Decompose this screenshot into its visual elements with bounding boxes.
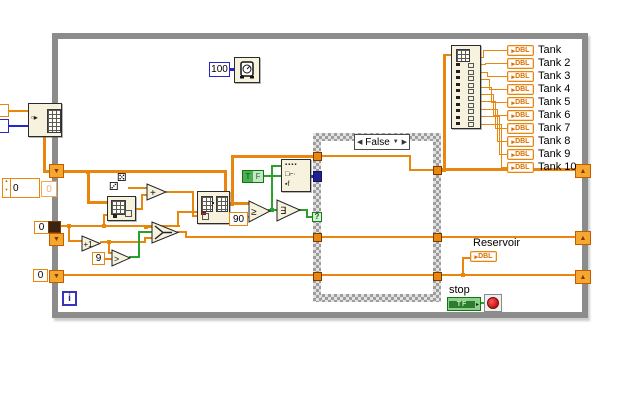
tank-label: Tank	[538, 44, 561, 56]
wire	[487, 76, 507, 77]
shift-register-right-top[interactable]: ▲	[575, 164, 591, 178]
tank-indicator[interactable]: ▸DBL	[507, 45, 534, 56]
true-false-constant[interactable]: T F	[242, 170, 264, 183]
tank-label: Tank 6	[538, 109, 570, 121]
dice-icon: ⚂	[109, 182, 119, 193]
stop-sign-icon	[487, 297, 499, 309]
array-grid-icon	[111, 200, 126, 215]
case-tunnel-left-mid[interactable]	[313, 233, 322, 242]
case-selector-label[interactable]: ◀ False ▼ ▶	[354, 134, 410, 150]
case-structure-bottom-border[interactable]	[313, 294, 441, 302]
array-grid-icon	[201, 196, 213, 212]
reservoir-indicator[interactable]: ▸DBL	[470, 251, 497, 262]
case-prev-arrow-icon[interactable]: ◀	[355, 138, 364, 146]
greater-equal-node[interactable]: ≥	[248, 200, 272, 224]
svg-text:≥: ≥	[251, 207, 257, 218]
wire	[43, 137, 46, 171]
wire-junction	[67, 224, 71, 228]
wire	[485, 63, 507, 64]
select-icon-row: ▪▪▪▪	[285, 162, 298, 168]
svg-text:+: +	[150, 188, 156, 199]
numeric-control-zero[interactable]: ▲▼ 0	[2, 178, 40, 198]
wait-metronome-node[interactable]	[234, 57, 260, 83]
index-row	[454, 75, 478, 80]
wire	[483, 50, 507, 51]
tank-label: Tank 8	[538, 135, 570, 147]
iteration-terminal[interactable]: i	[62, 291, 77, 306]
wire	[185, 236, 314, 238]
index-row	[454, 108, 478, 113]
nine-constant[interactable]: 9	[92, 252, 105, 265]
tank-label: Tank 5	[538, 96, 570, 108]
reservoir-init-zero-constant[interactable]: 0	[33, 269, 48, 282]
shift-register-right-mid[interactable]: ▲	[575, 231, 591, 245]
wire	[9, 125, 28, 127]
index-array-expanded-node[interactable]	[451, 45, 481, 129]
wire	[322, 236, 434, 238]
wire	[443, 55, 446, 170]
tank-indicator[interactable]: ▸DBL	[507, 84, 534, 95]
index-rows	[454, 62, 478, 126]
tank-indicator[interactable]: ▸DBL	[507, 97, 534, 108]
wire-junction	[442, 168, 446, 172]
case-tunnel-left-bottom[interactable]	[313, 272, 322, 281]
shift-register-right-bottom[interactable]: ▲	[575, 270, 591, 284]
wire	[479, 124, 501, 125]
wire	[87, 201, 107, 204]
wire	[499, 116, 500, 155]
wire-junction	[461, 273, 465, 277]
loop-condition-terminal[interactable]	[484, 294, 502, 312]
wire	[138, 231, 152, 233]
wire	[138, 232, 140, 258]
wire	[177, 211, 198, 213]
case-selector-terminal[interactable]: ?	[312, 212, 322, 222]
stop-button-terminal[interactable]: TF ▸	[447, 297, 481, 311]
tank-indicator[interactable]: ▸DBL	[507, 136, 534, 147]
index-port	[202, 213, 209, 220]
tank-indicator[interactable]: ▸DBL	[507, 71, 534, 82]
wire	[231, 155, 314, 158]
case-tunnel-left-top[interactable]	[313, 152, 322, 161]
wire	[9, 110, 28, 112]
tank-indicator[interactable]: ▸DBL	[507, 149, 534, 160]
svg-text:∃: ∃	[280, 206, 286, 217]
numeric-control-value[interactable]: 0	[11, 179, 39, 197]
cutoff-constant-bottom[interactable]	[0, 119, 9, 133]
wire	[479, 116, 499, 117]
wire	[322, 155, 411, 157]
wire	[87, 172, 90, 203]
wire	[409, 169, 434, 171]
wire	[479, 109, 497, 110]
wire	[141, 194, 143, 210]
metronome-icon	[235, 58, 259, 82]
array-grid-icon	[456, 49, 470, 62]
index-row	[454, 62, 478, 67]
wire	[483, 50, 484, 58]
case-selector-value[interactable]: False	[365, 137, 389, 148]
wire-junction	[230, 202, 234, 206]
wait-ms-constant[interactable]: 100	[209, 62, 230, 77]
shift-register-left-mid[interactable]: ▼	[49, 233, 64, 246]
select-icon-row: ▪f	[285, 181, 289, 188]
wire	[110, 241, 146, 243]
case-next-arrow-icon[interactable]: ▶	[400, 138, 409, 146]
spinner-icon[interactable]: ▲▼	[3, 179, 11, 197]
index-array-node[interactable]	[107, 196, 136, 221]
tank-indicator[interactable]: ▸DBL	[507, 162, 534, 173]
wire-junction	[144, 225, 148, 229]
array-grid-icon	[47, 109, 61, 133]
array-grid-icon	[216, 196, 228, 212]
wire	[322, 274, 434, 276]
threshold-constant[interactable]: 90	[229, 212, 248, 226]
tank-label: Tank 2	[538, 57, 570, 69]
wire	[63, 274, 314, 276]
wire-junction	[107, 240, 111, 244]
block-diagram-canvas: ◀ False ▼ ▶ ▫▸ ▲▼ 0 0 0 0 ▼ ▼ ▼ ▲ ▲ ▲ i …	[0, 0, 640, 400]
shift-register-left-bottom[interactable]: ▼	[49, 270, 64, 283]
wire-junction	[86, 170, 90, 174]
wire	[271, 165, 281, 167]
wire	[501, 124, 502, 168]
wire	[68, 240, 82, 242]
wire	[497, 109, 498, 142]
wire	[264, 175, 281, 177]
greater-than-node[interactable]: >	[111, 249, 132, 268]
shift-register-left-top[interactable]: ▼	[49, 164, 64, 178]
terminal-arrow-icon: ▸	[475, 301, 479, 308]
wire	[166, 191, 194, 193]
index-row	[454, 88, 478, 93]
stop-label: stop	[449, 284, 470, 296]
select-icon-row: □⌐·	[285, 171, 296, 178]
case-tunnel-right-bottom[interactable]	[433, 272, 442, 281]
tank-label: Tank 7	[538, 122, 570, 134]
tank-indicator[interactable]: ▸DBL	[507, 123, 534, 134]
initialize-array-node[interactable]: ▫▸	[28, 103, 62, 137]
increment-node[interactable]: +1	[81, 235, 102, 253]
random-number-node[interactable]: ⚄ ⚂	[109, 175, 129, 194]
case-tunnel-right-top[interactable]	[433, 166, 442, 175]
wire	[192, 191, 194, 217]
index-row	[454, 115, 478, 120]
case-dropdown-icon[interactable]: ▼	[393, 139, 399, 145]
index-row	[454, 102, 478, 107]
reservoir-label: Reservoir	[473, 237, 520, 249]
stacked-shift-register-dark[interactable]	[48, 221, 61, 233]
wire	[128, 187, 147, 189]
index-row	[454, 95, 478, 100]
shift-init-zero-constant[interactable]: 0	[34, 221, 49, 234]
tank-label: Tank 10	[538, 161, 577, 173]
index-row	[454, 82, 478, 87]
index-port	[125, 210, 132, 217]
tank-indicator[interactable]: ▸DBL	[507, 58, 534, 69]
wire-junction	[102, 224, 106, 228]
tank-label: Tank 4	[538, 83, 570, 95]
tank-indicator[interactable]: ▸DBL	[507, 110, 534, 121]
wire	[493, 94, 494, 116]
case-tunnel-right-mid[interactable]	[433, 233, 442, 242]
numeric-constant-dimmed[interactable]: 0	[41, 181, 57, 197]
or-array-elements-node[interactable]: ∃	[276, 199, 302, 223]
tank-label: Tank 3	[538, 70, 570, 82]
index-row	[454, 69, 478, 74]
select-function-node[interactable]: ▪▪▪▪ □⌐· ▪f	[281, 159, 311, 192]
index-marker	[113, 214, 117, 218]
wire	[479, 94, 493, 95]
cutoff-constant-top[interactable]	[0, 104, 9, 117]
svg-text:+1: +1	[84, 240, 94, 249]
wire	[224, 170, 227, 193]
index-row	[454, 121, 478, 126]
svg-text:>: >	[114, 254, 119, 264]
case-tunnel-blue[interactable]	[313, 171, 322, 182]
wire	[231, 156, 234, 204]
init-array-glyph: ▫▸	[31, 113, 38, 122]
tank-label: Tank 9	[538, 148, 570, 160]
add-node[interactable]: +	[146, 183, 168, 202]
dot	[212, 202, 214, 204]
wire	[479, 101, 495, 102]
replace-array-subset-node[interactable]	[197, 191, 230, 224]
select-node[interactable]	[151, 221, 180, 245]
